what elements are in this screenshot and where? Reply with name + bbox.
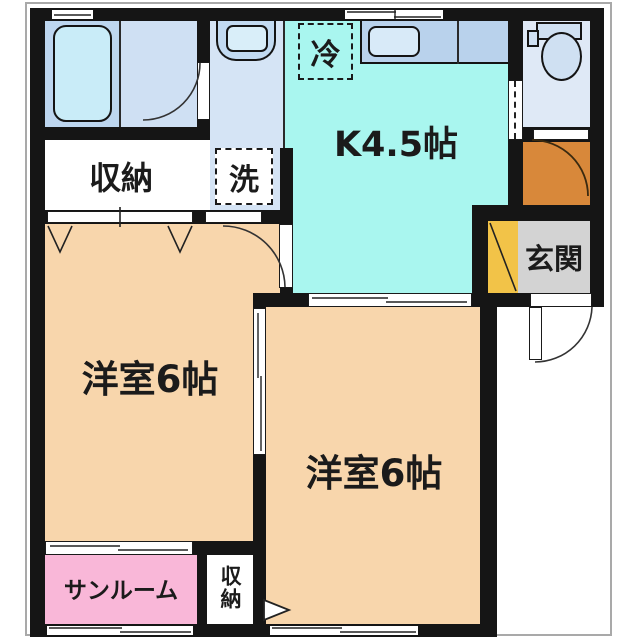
wall-kitchen-right-upper [508,21,523,80]
closet-lower-label: 収納 [207,552,253,624]
wall-room-south-right [480,293,497,637]
shoe-cabinet [488,221,518,293]
room-south-label: 洋室6帖 [266,432,482,508]
room-west-opening [205,211,262,223]
kitchen-label: K4.5帖 [284,108,508,174]
sunroom-label: サンルーム [45,552,197,624]
toilet-door-leaf [533,129,589,140]
room-west-floor [45,293,253,541]
room-west-label: 洋室6帖 [45,338,255,414]
wall-closet-lower-left [197,552,207,637]
entrance-door-leaf-open [529,307,542,360]
refrigerator-label: 冷 [311,30,341,74]
refrigerator-box: 冷 [298,23,353,80]
sunroom-window [47,624,193,637]
sliding-door-kitchen-room-south [308,293,472,307]
wall-hall-entrance-divider [472,205,590,221]
counter-divider [457,21,459,64]
opening-dashed-line [514,81,516,139]
wall-right-upper [590,8,604,307]
kitchen-window [345,8,443,21]
wall-kitchen-room-south [266,293,308,307]
bathroom-floor-dry-area [120,21,197,127]
wall-bath-bottom [30,127,210,140]
kitchen-toilet-opening [508,80,523,140]
closet-upper-track [47,211,193,223]
bathtub [53,25,112,122]
wall-left [30,8,45,637]
floor-plan: 冷 洗 収納 K4.5帖 玄関 洋室6帖 洋室6帖 サンルーム 収納 [0,0,640,640]
entrance-label: 玄関 [518,221,590,293]
kitchen-sink [368,26,420,57]
entrance-door-gap [530,293,592,307]
toilet-flush-handle [527,30,539,47]
toilet-bowl [541,32,582,81]
wall-top [30,8,604,21]
wash-basin-bowl [226,25,268,52]
closet-upper-label: 収納 [45,140,197,212]
wall-kitchen-right-lower [508,140,523,215]
washing-machine-box: 洗 [215,148,273,205]
divider-bathroom [119,21,121,127]
room-south-window [270,624,418,637]
bathroom-door-leaf [197,62,210,120]
washing-machine-label: 洗 [229,155,259,199]
bathroom-window [52,8,93,21]
room-west-door-leaf [279,224,293,288]
room-west-floor-upper [45,224,281,293]
entrance-hall-step [523,142,590,212]
wall-bath-washroom-upper [197,21,210,62]
